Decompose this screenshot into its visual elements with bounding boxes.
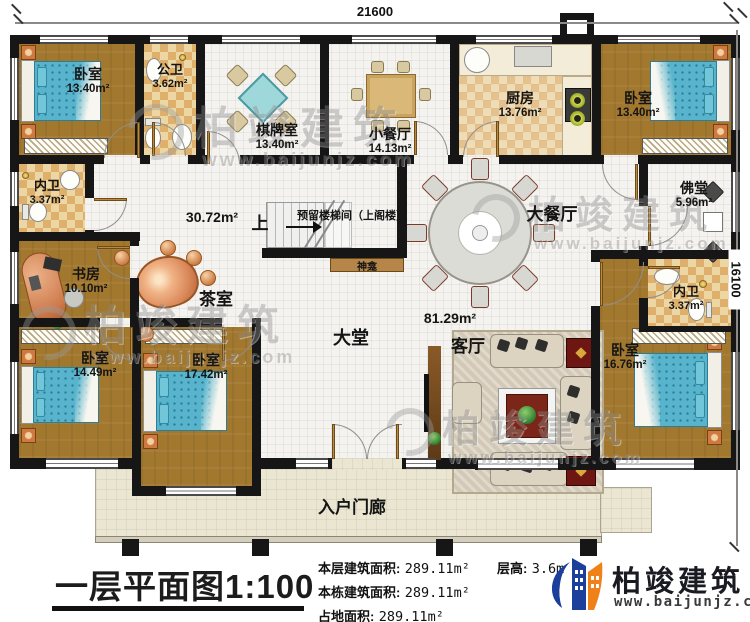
wall	[639, 326, 731, 332]
bed-headboard	[707, 352, 722, 428]
shrine-label: 神龛	[357, 258, 377, 273]
bed-pillow	[159, 404, 169, 424]
wall	[10, 155, 104, 164]
window	[46, 458, 118, 469]
window	[222, 35, 300, 44]
room-label-grand-dining: 大餐厅	[527, 205, 578, 225]
title-underline	[52, 606, 304, 611]
window	[616, 458, 694, 470]
door-leaf	[152, 122, 155, 156]
corner-mark	[11, 4, 21, 14]
window	[40, 35, 108, 44]
window	[406, 458, 436, 469]
stool-icon	[186, 250, 202, 266]
chimney	[560, 13, 594, 41]
bed-pillow	[36, 372, 45, 391]
plant-icon	[518, 406, 536, 424]
tv-icon	[424, 374, 429, 432]
burner-icon	[570, 111, 585, 126]
bed-pillow	[695, 394, 705, 418]
pillar	[122, 539, 139, 556]
wall	[141, 318, 222, 327]
dining-table-icon	[366, 74, 416, 118]
shrine-shelf: 神龛	[330, 258, 404, 272]
room-label-study: 书房 10.10m²	[65, 266, 108, 297]
stool-icon	[200, 270, 216, 286]
window	[352, 35, 436, 44]
window	[296, 458, 328, 469]
round-table-hub	[472, 225, 488, 241]
chair-icon	[419, 88, 431, 101]
floor-plan-canvas: 21600 16100	[0, 0, 750, 622]
window	[618, 35, 700, 44]
wall	[591, 259, 600, 262]
bed-headboard	[716, 60, 730, 122]
stairs-arrow	[286, 226, 314, 228]
window	[166, 486, 236, 496]
wall	[639, 298, 648, 326]
room-label-lobby: 大堂	[333, 328, 369, 350]
room-label-small-dining: 小餐厅 14.13m²	[369, 126, 412, 157]
room-label-public-bathroom: 公卫 3.62m²	[153, 62, 188, 91]
brand-url: www.baijunjz.com	[614, 594, 750, 610]
room-label-entry-porch: 入户门廊	[318, 498, 386, 518]
corner-mark	[729, 542, 739, 552]
gold-emblem-icon	[575, 347, 586, 358]
entrance-door-leaf	[332, 424, 335, 459]
nightstand-icon	[143, 353, 158, 368]
door-leaf	[414, 121, 417, 155]
wall	[320, 35, 329, 164]
porch-floor-step	[600, 487, 652, 533]
door-leaf	[97, 246, 130, 249]
area-stats: 本层建筑面积: 289.11m² 本栋建筑面积: 289.11m² 占地面积: …	[318, 558, 470, 622]
chair-icon	[351, 88, 363, 101]
pillar	[436, 539, 453, 556]
bed-headboard	[143, 370, 157, 432]
bed-pillow	[704, 94, 714, 114]
toilet-icon	[22, 204, 29, 220]
burner-icon	[570, 93, 585, 108]
wall	[639, 164, 648, 206]
room-label-bedroom-bottom-left: 卧室 14.49m²	[74, 350, 117, 381]
room-label-bedroom-top-right: 卧室 13.40m²	[617, 90, 660, 121]
room-label-bedroom-bottom-right: 卧室 16.76m²	[604, 342, 647, 373]
room-label-ensuite-right: 内卫 3.37m²	[669, 284, 704, 313]
wall	[85, 164, 94, 198]
stat-row: 本栋建筑面积: 289.11m²	[318, 582, 470, 602]
door-leaf	[207, 131, 210, 164]
bed-icon	[650, 60, 730, 122]
dining-chair-icon	[533, 224, 555, 242]
window	[10, 362, 19, 434]
porch-edge	[95, 536, 602, 543]
door-leaf	[648, 266, 680, 269]
nightstand-icon	[713, 124, 728, 139]
room-label-kitchen: 厨房 13.76m²	[499, 90, 542, 121]
room-label-bedroom-top-left: 卧室 13.40m²	[67, 66, 110, 97]
room-label-buddha-hall: 佛堂 5.96m²	[676, 180, 712, 211]
wall	[450, 35, 459, 164]
wardrobe-icon	[145, 329, 223, 344]
window	[476, 35, 552, 44]
bed-headboard	[21, 60, 35, 122]
wall	[638, 155, 740, 164]
wall	[130, 241, 139, 246]
wall	[140, 155, 150, 164]
bed-pillow	[695, 361, 705, 385]
wall	[448, 155, 463, 164]
window	[10, 252, 19, 304]
dimension-line-top	[15, 22, 737, 24]
nightstand-icon	[21, 349, 36, 364]
pillar	[252, 539, 269, 556]
stool-icon	[160, 240, 176, 256]
window	[10, 172, 19, 206]
entrance-door-leaf	[396, 424, 399, 459]
room-label-bedroom-bottom-mid: 卧室 17.42m²	[185, 352, 228, 383]
door-leaf	[648, 206, 651, 246]
door-leaf	[137, 122, 140, 158]
room-label-ensuite-left: 内卫 3.37m²	[30, 178, 65, 207]
plant-icon	[428, 432, 441, 445]
nightstand-icon	[143, 434, 158, 449]
wall	[196, 35, 205, 164]
light-fixture-icon	[22, 172, 29, 179]
dimension-right-value: 16100	[729, 250, 744, 310]
door-leaf	[600, 262, 603, 306]
door-leaf	[94, 198, 127, 201]
brand-logo-icon	[544, 552, 608, 616]
page-title: 一层平面图1:100	[55, 560, 314, 608]
living-area-value: 81.29m²	[424, 310, 476, 327]
kitchen-sink-icon	[514, 46, 552, 67]
nightstand-icon	[21, 124, 36, 139]
chair-icon	[397, 61, 410, 73]
wall	[188, 155, 207, 164]
wardrobe-icon	[24, 138, 108, 154]
armchair-icon	[452, 382, 482, 424]
nightstand-icon	[707, 430, 722, 445]
altar-table-icon	[703, 212, 723, 232]
room-label-mahjong-room: 棋牌室 13.40m²	[256, 122, 299, 153]
stat-row: 本层建筑面积: 289.11m²	[318, 558, 470, 578]
wall	[592, 35, 601, 164]
hall-area-value: 30.72m²	[186, 209, 238, 226]
door-leaf	[130, 327, 133, 360]
wardrobe-icon	[21, 329, 100, 344]
entrance-threshold	[332, 458, 402, 470]
bed-pillow	[37, 94, 47, 114]
wall	[262, 248, 407, 258]
wall	[252, 318, 261, 496]
stairwell-label: 预留楼梯间（上阁楼）	[297, 210, 407, 223]
dimension-top-value: 21600	[345, 4, 405, 19]
nightstand-icon	[713, 45, 728, 60]
nightstand-icon	[21, 45, 36, 60]
wall	[499, 155, 604, 164]
wall	[10, 318, 100, 327]
kitchen-basin-icon	[464, 47, 490, 73]
room-label-living-room: 客厅	[451, 337, 485, 357]
window	[478, 458, 558, 470]
bed-pillow	[159, 377, 169, 397]
nightstand-icon	[21, 428, 36, 443]
room-label-tea-room: 茶室	[199, 290, 233, 310]
bed-icon	[634, 352, 722, 428]
bed-pillow	[37, 67, 47, 87]
stairs-up-label: 上	[252, 214, 269, 234]
wall	[591, 306, 600, 458]
dining-chair-icon	[471, 286, 489, 308]
toilet-icon	[706, 302, 712, 318]
dining-chair-icon	[471, 158, 489, 180]
wall	[591, 250, 731, 259]
corner-mark	[737, 8, 747, 18]
bed-pillow	[704, 67, 714, 87]
window	[10, 58, 19, 120]
wall	[10, 232, 140, 241]
chair-icon	[371, 61, 384, 73]
wardrobe-icon	[642, 138, 728, 154]
window	[150, 35, 188, 44]
door-leaf	[635, 164, 638, 200]
bed-pillow	[36, 398, 45, 417]
dining-chair-icon	[405, 224, 427, 242]
stat-row: 占地面积: 289.11m²	[318, 606, 470, 622]
light-fixture-icon	[179, 54, 186, 61]
corner-mark	[723, 2, 733, 12]
door-leaf	[496, 121, 499, 157]
wall	[132, 318, 141, 496]
